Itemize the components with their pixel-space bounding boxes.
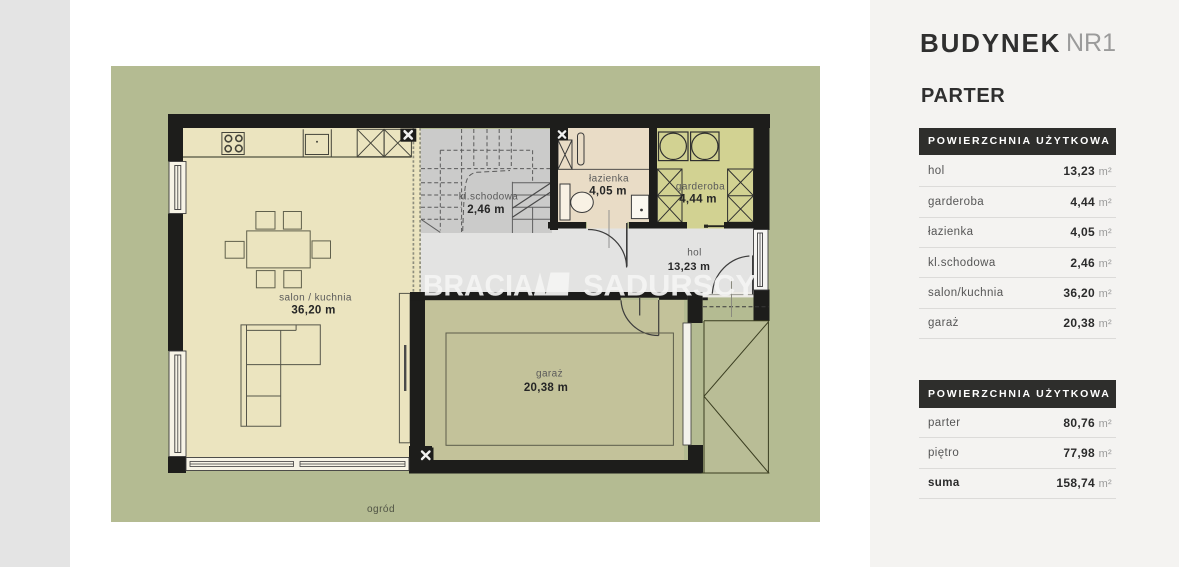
svg-text:łazienka: łazienka [589, 174, 629, 185]
svg-text:kl.schodowa: kl.schodowa [459, 192, 518, 203]
svg-text:20,38 m: 20,38 m [524, 382, 568, 394]
svg-text:2,46 m: 2,46 m [467, 204, 505, 216]
svg-text:garaż: garaż [536, 369, 563, 380]
svg-text:salon / kuchnia: salon / kuchnia [279, 293, 352, 304]
svg-text:BRACIA: BRACIA [423, 270, 534, 303]
svg-text:garderoba: garderoba [676, 182, 725, 193]
svg-text:36,20 m: 36,20 m [291, 305, 335, 317]
svg-text:SADURSCY: SADURSCY [583, 270, 756, 303]
svg-text:4,05 m: 4,05 m [589, 186, 627, 198]
svg-text:4,44 m: 4,44 m [679, 194, 717, 206]
svg-text:hol: hol [687, 248, 702, 259]
svg-text:ogród: ogród [367, 504, 395, 515]
